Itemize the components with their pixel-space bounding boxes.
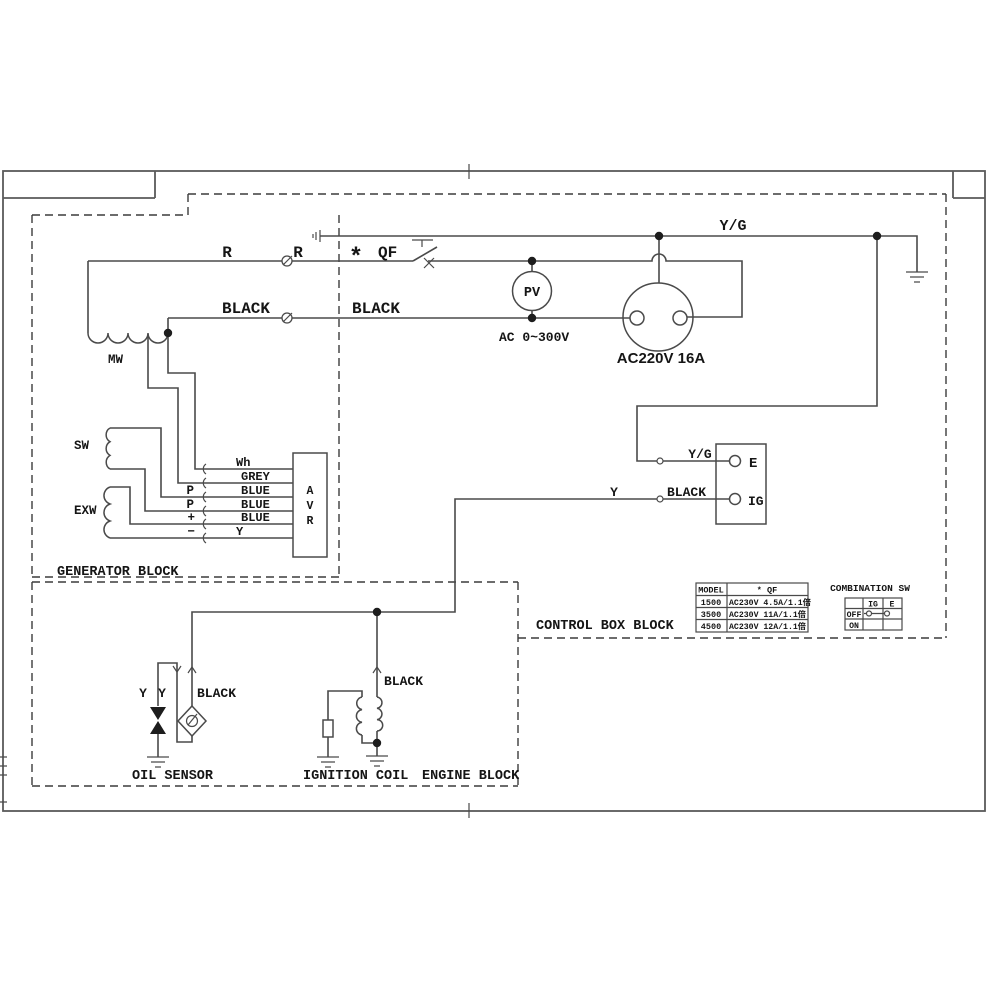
exw-label: EXW	[74, 504, 97, 518]
model-table-cell: AC230V 4.5A/1.1倍	[729, 597, 812, 608]
drawing-frame	[0, 164, 985, 818]
engine-block-label: ENGINE BLOCK	[422, 769, 520, 784]
wire-label-r-out: R	[293, 244, 303, 262]
junction-dots	[164, 232, 881, 747]
combination-sw-title: COMBINATION SW	[830, 583, 910, 594]
wire-label-y-oil-2: Y	[158, 686, 166, 701]
socket-label: AC220V 16A	[617, 350, 706, 367]
oil-switch-symbol	[150, 707, 166, 734]
terminal-block	[716, 444, 766, 524]
ignition-coil-label: IGNITION COIL	[303, 769, 408, 784]
ground-icon-ignition-left	[317, 757, 339, 767]
wire-mw-tap-to-grey	[148, 334, 293, 483]
model-table-cell: 1500	[701, 598, 721, 608]
terminal-e-circle	[730, 456, 741, 467]
wire-label-yg-e: Y/G	[688, 447, 712, 462]
avr-pin-grey: GREY	[241, 470, 271, 484]
breaker-label: QF	[378, 244, 397, 262]
model-table-header-1: MODEL	[698, 586, 724, 596]
wire-label-y-ig: Y	[610, 485, 618, 500]
combination-sw-col-e: E	[890, 601, 895, 610]
model-table-cell: 4500	[701, 622, 721, 632]
avr-letter-v: V	[307, 500, 314, 513]
ignition-resistor-box	[323, 720, 333, 737]
mw-label: MW	[108, 353, 124, 367]
wire-label-black-out: BLACK	[352, 300, 400, 318]
terminal-ig-label: IG	[748, 494, 764, 509]
frame-border	[3, 171, 985, 811]
engine-connector-icons	[173, 666, 381, 673]
avr-pin-blue2: BLUE	[241, 498, 270, 512]
avr-pin-minus: −	[187, 525, 195, 539]
terminal-e-label: E	[749, 456, 757, 472]
wire-label-r-gen: R	[222, 244, 232, 262]
wiring-diagram: MODEL * QF 1500 AC230V 4.5A/1.1倍 3500 AC…	[0, 0, 987, 987]
wire-yg-line	[320, 236, 917, 272]
pv-label: PV	[524, 286, 541, 301]
ac-socket	[623, 283, 693, 351]
terminal-connector-icons	[657, 458, 663, 502]
chassis-ground-icon	[313, 230, 320, 242]
avr-pin-blue1: BLUE	[241, 484, 270, 498]
ground-icon-top-right	[906, 272, 928, 282]
sw-label: SW	[74, 439, 90, 453]
wire-label-yg-main: Y/G	[719, 218, 746, 235]
avr-pin-y: Y	[236, 525, 244, 539]
oil-sensor-label: OIL SENSOR	[132, 769, 214, 784]
generator-block-label: GENERATOR BLOCK	[57, 565, 179, 580]
wire-label-black-ign: BLACK	[384, 674, 423, 689]
avr-pin-p2: P	[186, 498, 194, 512]
ground-icon-oil-sensor	[147, 757, 169, 767]
combination-sw-col-ig: IG	[868, 601, 878, 610]
control-box-block-label: CONTROL BOX BLOCK	[536, 619, 675, 634]
pv-range-label: AC 0~300V	[499, 330, 569, 345]
avr-pin-p1: P	[186, 484, 194, 498]
avr-pin-blue3: BLUE	[241, 511, 270, 525]
breaker-star: *	[349, 245, 363, 272]
exw-coil	[104, 487, 110, 538]
x-mark-icon	[424, 258, 434, 268]
mw-coil	[88, 333, 168, 343]
wire-ig-to-engine	[192, 499, 730, 706]
model-table-cell: AC230V 11A/1.1倍	[729, 609, 807, 620]
terminal-ig-circle	[730, 494, 741, 505]
bullet-connector-icons	[282, 256, 292, 323]
combination-sw-row-on: ON	[849, 622, 859, 631]
qf-breaker	[412, 240, 437, 268]
wires	[88, 236, 917, 757]
ignition-coil-windings	[356, 697, 382, 735]
combination-sw-row-off: OFF	[847, 611, 862, 620]
switch-contact-icon	[864, 611, 890, 616]
wire-label-y-oil-1: Y	[139, 686, 147, 701]
wire-label-black-ig: BLACK	[667, 485, 706, 500]
frame-tick-marks	[0, 164, 469, 818]
model-table-header-2: * QF	[757, 586, 777, 596]
sw-coil	[106, 428, 110, 469]
avr-letter-r: R	[307, 515, 314, 528]
combination-sw-table: COMBINATION SW IG E OFF ON	[830, 583, 910, 631]
avr-connector-icons	[203, 464, 206, 543]
wire-ignition-coil	[328, 691, 377, 757]
wire-label-black-gen: BLACK	[222, 300, 270, 318]
avr-letter-a: A	[307, 485, 314, 498]
avr-pin-wh: Wh	[236, 456, 250, 470]
model-table: MODEL * QF 1500 AC230V 4.5A/1.1倍 3500 AC…	[696, 583, 812, 632]
wire-mw-to-wh	[168, 333, 293, 469]
wire-label-black-oil: BLACK	[197, 686, 236, 701]
model-table-cell: 3500	[701, 610, 721, 620]
ground-icon-ignition-right	[366, 756, 388, 766]
oil-sensor-symbol	[178, 706, 206, 736]
avr-pin-plus: +	[187, 511, 195, 525]
model-table-cell: AC230V 12A/1.1倍	[729, 621, 807, 632]
block-boundaries	[32, 194, 946, 786]
